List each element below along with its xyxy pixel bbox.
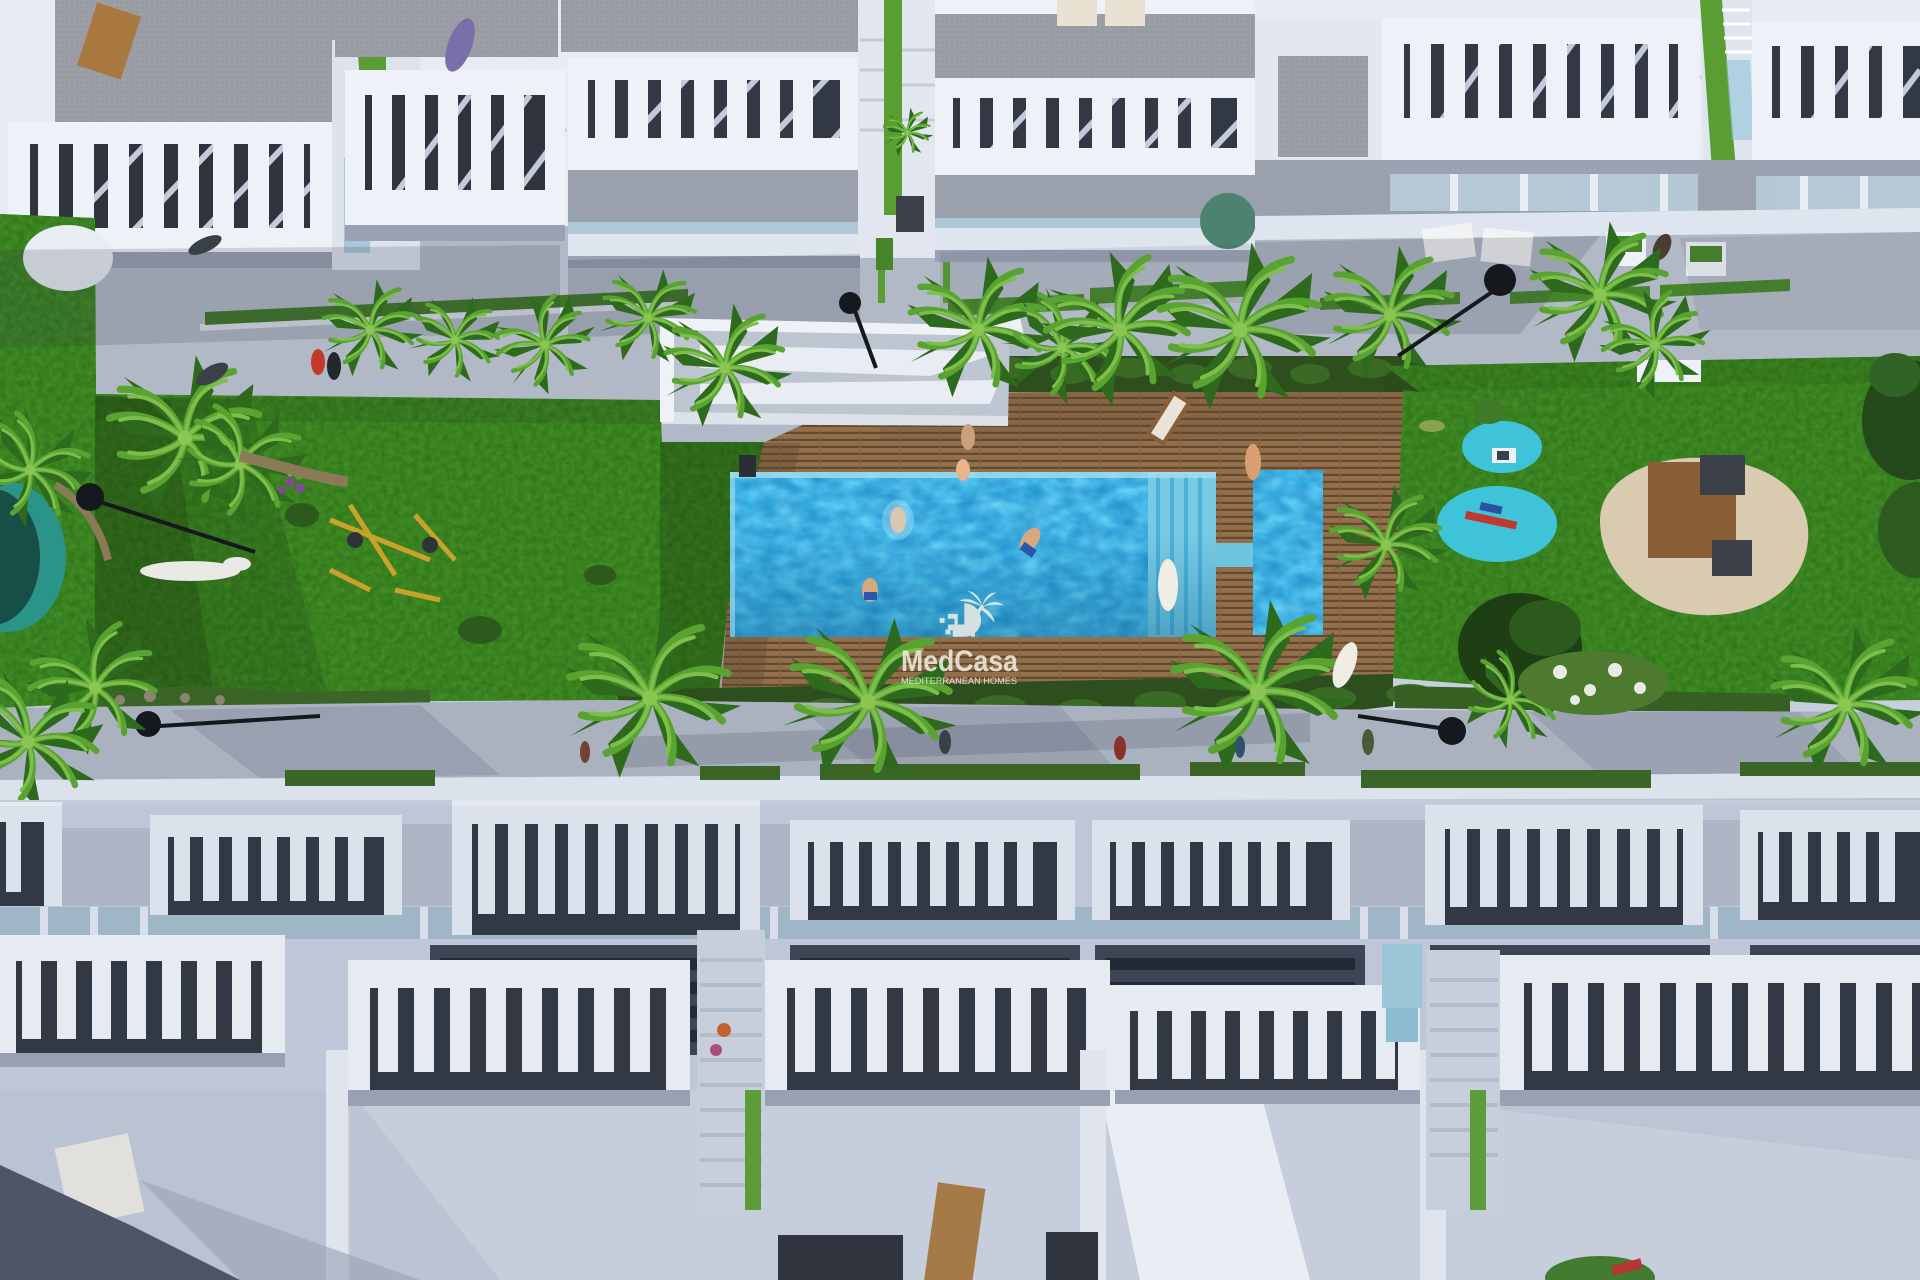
svg-text:MEDITERRANEAN HOMES: MEDITERRANEAN HOMES xyxy=(901,676,1017,686)
svg-text:MedCasa: MedCasa xyxy=(901,645,1018,678)
